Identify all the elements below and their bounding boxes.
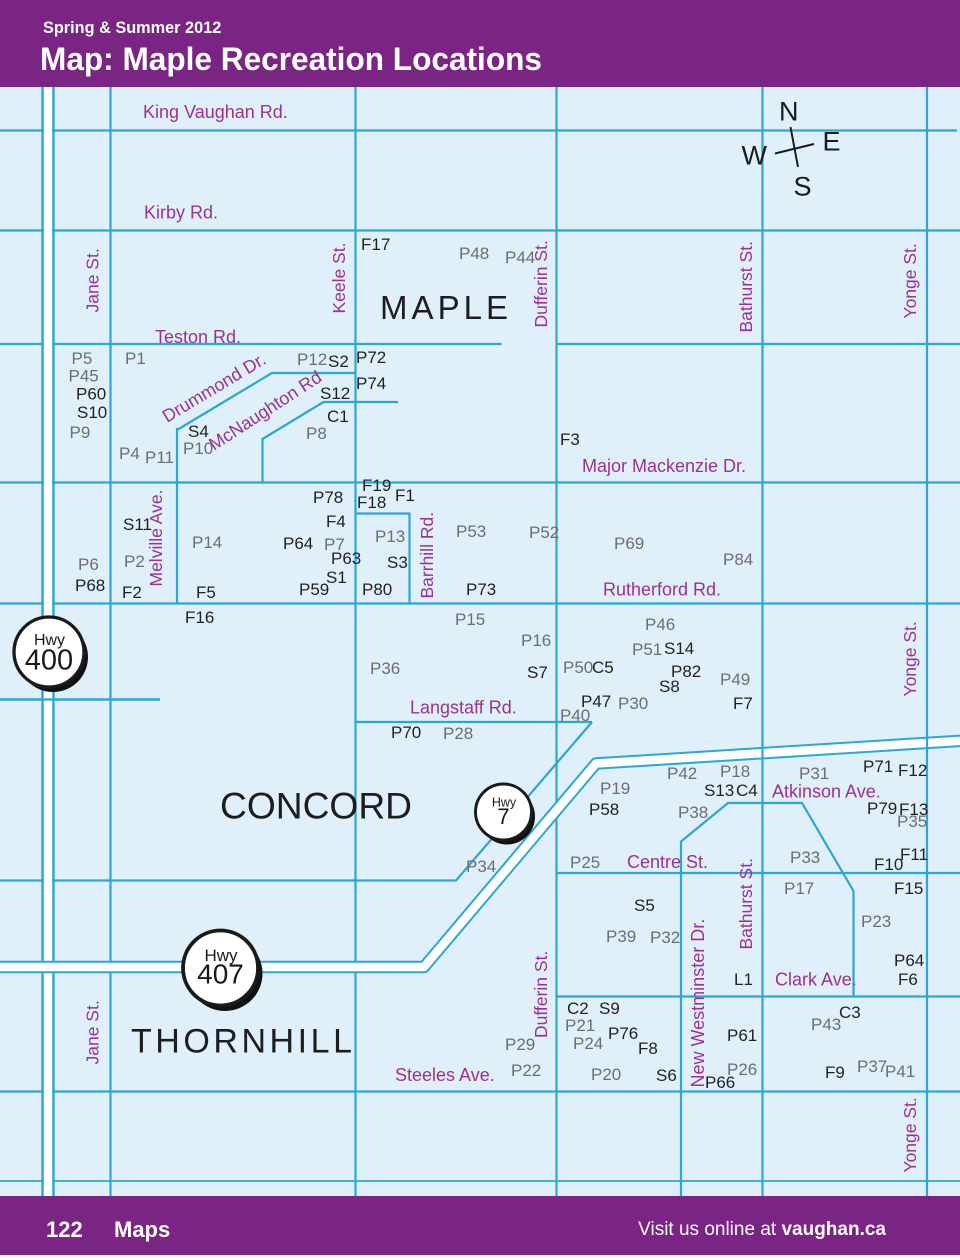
svg-text:F11: F11 <box>900 845 928 864</box>
svg-text:P37: P37 <box>857 1057 887 1076</box>
svg-text:S3: S3 <box>387 553 408 572</box>
svg-text:P9: P9 <box>70 423 91 442</box>
svg-text:407: 407 <box>197 959 244 990</box>
svg-text:Map: Maple Recreation Location: Map: Maple Recreation Locations <box>40 41 542 77</box>
svg-text:P25: P25 <box>570 853 600 872</box>
svg-text:P34: P34 <box>466 857 496 876</box>
svg-text:F17: F17 <box>361 235 390 254</box>
svg-text:P53: P53 <box>456 522 486 541</box>
svg-text:S5: S5 <box>634 896 655 915</box>
svg-text:P6: P6 <box>78 555 99 574</box>
svg-text:P17: P17 <box>784 879 814 898</box>
svg-text:P13: P13 <box>375 527 405 546</box>
svg-text:Bathurst St.: Bathurst St. <box>736 858 756 949</box>
svg-text:C1: C1 <box>327 407 349 426</box>
svg-text:F1: F1 <box>395 486 415 505</box>
svg-text:F6: F6 <box>898 970 918 989</box>
svg-text:P35: P35 <box>897 812 927 831</box>
svg-text:P45: P45 <box>69 367 99 386</box>
svg-text:P84: P84 <box>723 550 753 569</box>
svg-text:Centre St.: Centre St. <box>627 852 708 872</box>
svg-text:P59: P59 <box>299 580 329 599</box>
svg-text:MAPLE: MAPLE <box>380 289 508 326</box>
svg-text:P61: P61 <box>727 1026 757 1045</box>
svg-text:S6: S6 <box>656 1066 677 1085</box>
svg-text:S8: S8 <box>659 677 680 696</box>
svg-text:P64: P64 <box>283 534 313 553</box>
svg-text:P60: P60 <box>76 385 106 404</box>
svg-text:F15: F15 <box>894 879 923 898</box>
svg-text:7: 7 <box>497 804 509 829</box>
svg-text:Langstaff Rd.: Langstaff Rd. <box>410 698 517 718</box>
svg-text:F2: F2 <box>122 583 142 602</box>
svg-text:P2: P2 <box>124 552 145 571</box>
svg-text:F8: F8 <box>638 1039 658 1058</box>
svg-text:P78: P78 <box>313 488 343 507</box>
svg-text:400: 400 <box>25 645 73 677</box>
svg-text:Jane St.: Jane St. <box>83 248 103 312</box>
svg-text:C5: C5 <box>592 658 614 677</box>
svg-text:P30: P30 <box>618 694 648 713</box>
svg-text:P68: P68 <box>75 576 105 595</box>
svg-text:S10: S10 <box>77 403 107 422</box>
svg-text:F18: F18 <box>357 493 386 512</box>
svg-text:P58: P58 <box>589 800 619 819</box>
svg-text:P26: P26 <box>727 1060 757 1079</box>
svg-text:S2: S2 <box>328 352 349 371</box>
svg-text:Maps: Maps <box>114 1217 170 1242</box>
svg-text:F16: F16 <box>185 608 214 627</box>
svg-text:P46: P46 <box>645 615 675 634</box>
svg-text:Clark Ave.: Clark Ave. <box>775 970 857 990</box>
svg-text:L1: L1 <box>734 970 753 989</box>
svg-text:Visit us online at vaughan.ca: Visit us online at vaughan.ca <box>638 1219 886 1240</box>
svg-text:P70: P70 <box>391 723 421 742</box>
svg-text:King Vaughan Rd.: King Vaughan Rd. <box>143 102 288 122</box>
svg-text:F7: F7 <box>733 694 753 713</box>
svg-text:Atkinson Ave.: Atkinson Ave. <box>772 782 881 802</box>
svg-text:S11: S11 <box>123 515 152 534</box>
svg-text:C3: C3 <box>839 1003 861 1022</box>
svg-text:CONCORD: CONCORD <box>220 786 412 827</box>
svg-text:Teston Rd.: Teston Rd. <box>155 327 241 347</box>
svg-text:P40: P40 <box>560 706 590 725</box>
svg-text:P5: P5 <box>72 349 93 368</box>
svg-text:P39: P39 <box>606 927 636 946</box>
svg-text:P72: P72 <box>356 348 386 367</box>
svg-text:New Westminster Dr.: New Westminster Dr. <box>688 919 708 1088</box>
svg-text:P74: P74 <box>356 374 386 393</box>
svg-text:P20: P20 <box>591 1065 621 1084</box>
svg-text:P1: P1 <box>125 349 146 368</box>
svg-text:P28: P28 <box>443 724 473 743</box>
svg-text:Spring & Summer 2012: Spring & Summer 2012 <box>43 19 221 37</box>
svg-text:P23: P23 <box>861 912 891 931</box>
svg-text:P63: P63 <box>331 549 361 568</box>
svg-text:P31: P31 <box>799 764 829 783</box>
svg-text:C4: C4 <box>736 781 758 800</box>
svg-text:P41: P41 <box>885 1062 915 1081</box>
svg-text:P29: P29 <box>505 1035 535 1054</box>
svg-text:P16: P16 <box>521 631 551 650</box>
svg-text:F3: F3 <box>560 430 580 449</box>
svg-text:P32: P32 <box>650 928 680 947</box>
svg-text:F10: F10 <box>874 855 903 874</box>
svg-text:P42: P42 <box>667 764 697 783</box>
svg-text:P21: P21 <box>565 1016 595 1035</box>
svg-text:P52: P52 <box>529 523 559 542</box>
svg-text:S9: S9 <box>599 999 620 1018</box>
svg-text:F12: F12 <box>898 761 927 780</box>
svg-text:Yonge St.: Yonge St. <box>900 243 920 318</box>
svg-text:S: S <box>794 172 812 202</box>
svg-text:Yonge St.: Yonge St. <box>900 1097 920 1172</box>
svg-text:W: W <box>742 141 768 171</box>
svg-text:P50: P50 <box>563 658 593 677</box>
svg-text:S13: S13 <box>704 781 734 800</box>
svg-text:P15: P15 <box>455 610 485 629</box>
svg-text:Yonge St.: Yonge St. <box>900 621 920 696</box>
svg-text:P43: P43 <box>811 1015 841 1034</box>
svg-text:P49: P49 <box>720 670 750 689</box>
svg-text:P38: P38 <box>678 803 708 822</box>
svg-text:P71: P71 <box>863 757 893 776</box>
svg-text:P18: P18 <box>720 762 750 781</box>
svg-text:Jane St.: Jane St. <box>83 1000 103 1064</box>
svg-text:S14: S14 <box>664 639 694 658</box>
svg-text:P73: P73 <box>466 580 496 599</box>
svg-text:Kirby Rd.: Kirby Rd. <box>144 203 218 223</box>
svg-text:F4: F4 <box>326 512 346 531</box>
svg-text:P44: P44 <box>505 248 535 267</box>
svg-text:P64: P64 <box>894 951 924 970</box>
svg-text:P69: P69 <box>614 534 644 553</box>
svg-text:P79: P79 <box>867 799 897 818</box>
svg-text:P14: P14 <box>192 533 222 552</box>
svg-text:Melville Ave.: Melville Ave. <box>146 490 166 587</box>
svg-text:N: N <box>779 97 799 127</box>
svg-text:P22: P22 <box>511 1061 541 1080</box>
svg-text:P80: P80 <box>362 580 392 599</box>
svg-text:THORNHILL: THORNHILL <box>131 1023 352 1061</box>
svg-text:Barrhill Rd.: Barrhill Rd. <box>417 512 437 599</box>
svg-text:Bathurst St.: Bathurst St. <box>736 241 756 332</box>
svg-text:P4: P4 <box>119 444 140 463</box>
svg-text:P24: P24 <box>573 1034 603 1053</box>
svg-text:Dufferin St.: Dufferin St. <box>531 951 551 1038</box>
svg-text:P10: P10 <box>183 439 213 458</box>
svg-text:P33: P33 <box>790 848 820 867</box>
svg-text:Steeles Ave.: Steeles Ave. <box>395 1065 495 1085</box>
svg-text:P36: P36 <box>370 659 400 678</box>
svg-text:Rutherford Rd.: Rutherford Rd. <box>603 580 721 600</box>
svg-text:S7: S7 <box>527 663 548 682</box>
svg-text:P48: P48 <box>459 244 489 263</box>
svg-text:P8: P8 <box>306 424 327 443</box>
svg-text:Major Mackenzie Dr.: Major Mackenzie Dr. <box>582 456 746 476</box>
svg-text:S12: S12 <box>320 384 350 403</box>
svg-text:P12: P12 <box>297 350 327 369</box>
svg-text:E: E <box>823 127 841 157</box>
svg-text:P51: P51 <box>632 640 662 659</box>
svg-text:P19: P19 <box>600 779 630 798</box>
svg-text:P76: P76 <box>608 1024 638 1043</box>
svg-text:F5: F5 <box>196 583 216 602</box>
svg-text:P11: P11 <box>145 448 174 467</box>
svg-text:122: 122 <box>46 1217 83 1242</box>
svg-text:F9: F9 <box>825 1063 845 1082</box>
svg-text:Keele St.: Keele St. <box>329 242 349 313</box>
